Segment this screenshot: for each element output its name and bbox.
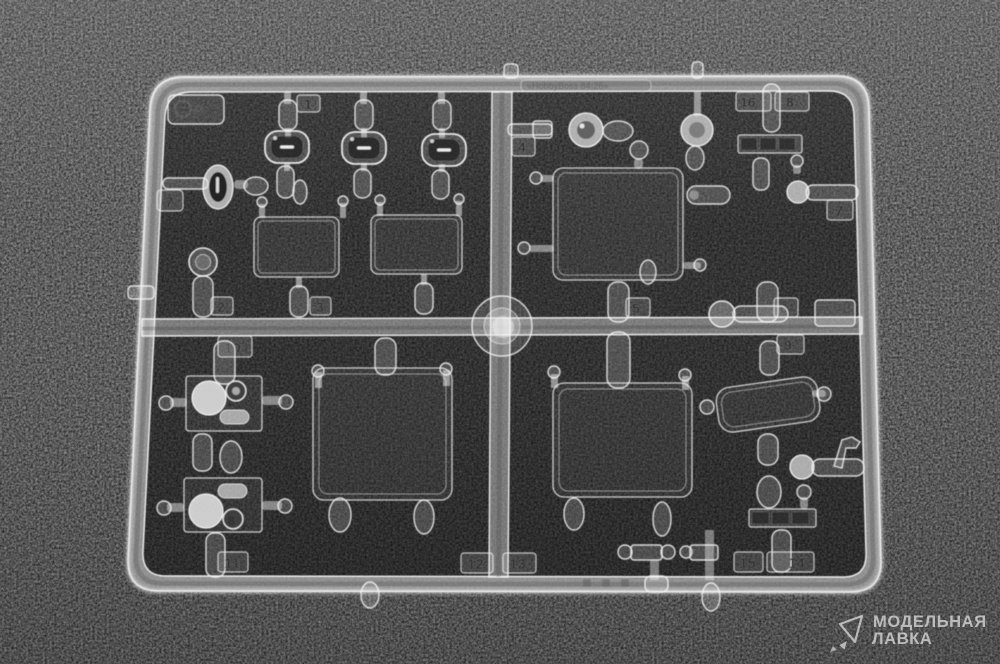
svg-text:ЛАВКА: ЛАВКА bbox=[872, 630, 932, 648]
svg-text:МОДЕЛЬНАЯ: МОДЕЛЬНАЯ bbox=[873, 613, 987, 631]
